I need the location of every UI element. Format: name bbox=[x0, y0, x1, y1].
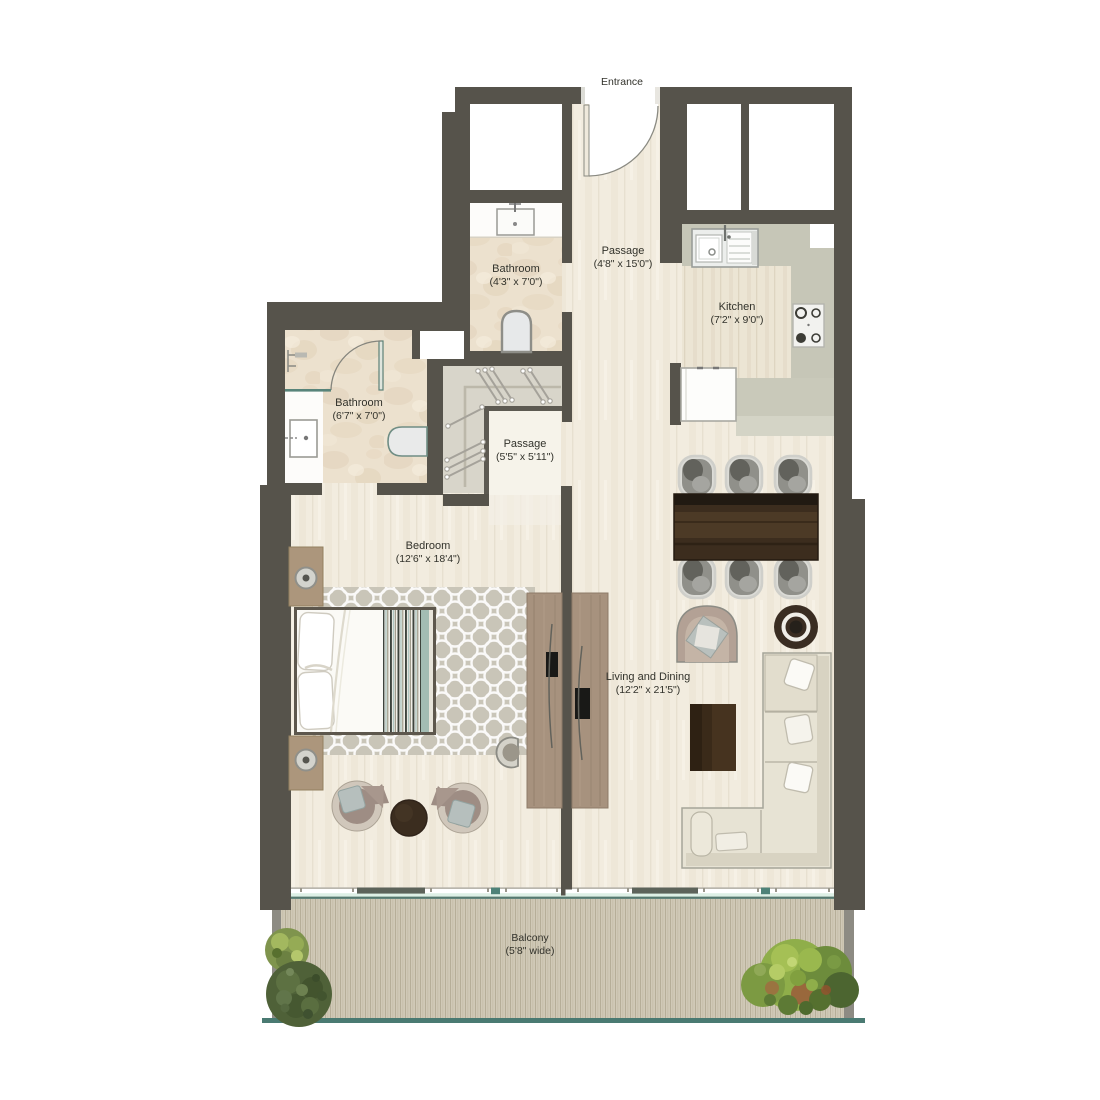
svg-text:(5'8" wide): (5'8" wide) bbox=[506, 945, 555, 957]
svg-text:(5'5" x 5'11"): (5'5" x 5'11") bbox=[496, 451, 554, 463]
svg-text:Bedroom: Bedroom bbox=[406, 540, 451, 552]
svg-text:(7'2" x 9'0"): (7'2" x 9'0") bbox=[711, 314, 764, 326]
svg-text:Bathroom: Bathroom bbox=[335, 397, 383, 409]
svg-text:Balcony: Balcony bbox=[511, 932, 549, 944]
svg-text:(6'7" x 7'0"): (6'7" x 7'0") bbox=[333, 410, 386, 422]
svg-text:Living and Dining: Living and Dining bbox=[606, 671, 690, 683]
svg-text:(12'2" x 21'5"): (12'2" x 21'5") bbox=[616, 684, 681, 696]
svg-text:(4'3" x 7'0"): (4'3" x 7'0") bbox=[490, 276, 543, 288]
svg-text:Bathroom: Bathroom bbox=[492, 263, 540, 275]
svg-text:Passage: Passage bbox=[504, 438, 547, 450]
svg-text:Passage: Passage bbox=[602, 245, 645, 257]
svg-text:(12'6" x 18'4"): (12'6" x 18'4") bbox=[396, 553, 461, 565]
svg-text:Entrance: Entrance bbox=[601, 76, 643, 88]
svg-text:Kitchen: Kitchen bbox=[719, 301, 756, 313]
svg-text:(4'8" x 15'0"): (4'8" x 15'0") bbox=[594, 258, 653, 270]
